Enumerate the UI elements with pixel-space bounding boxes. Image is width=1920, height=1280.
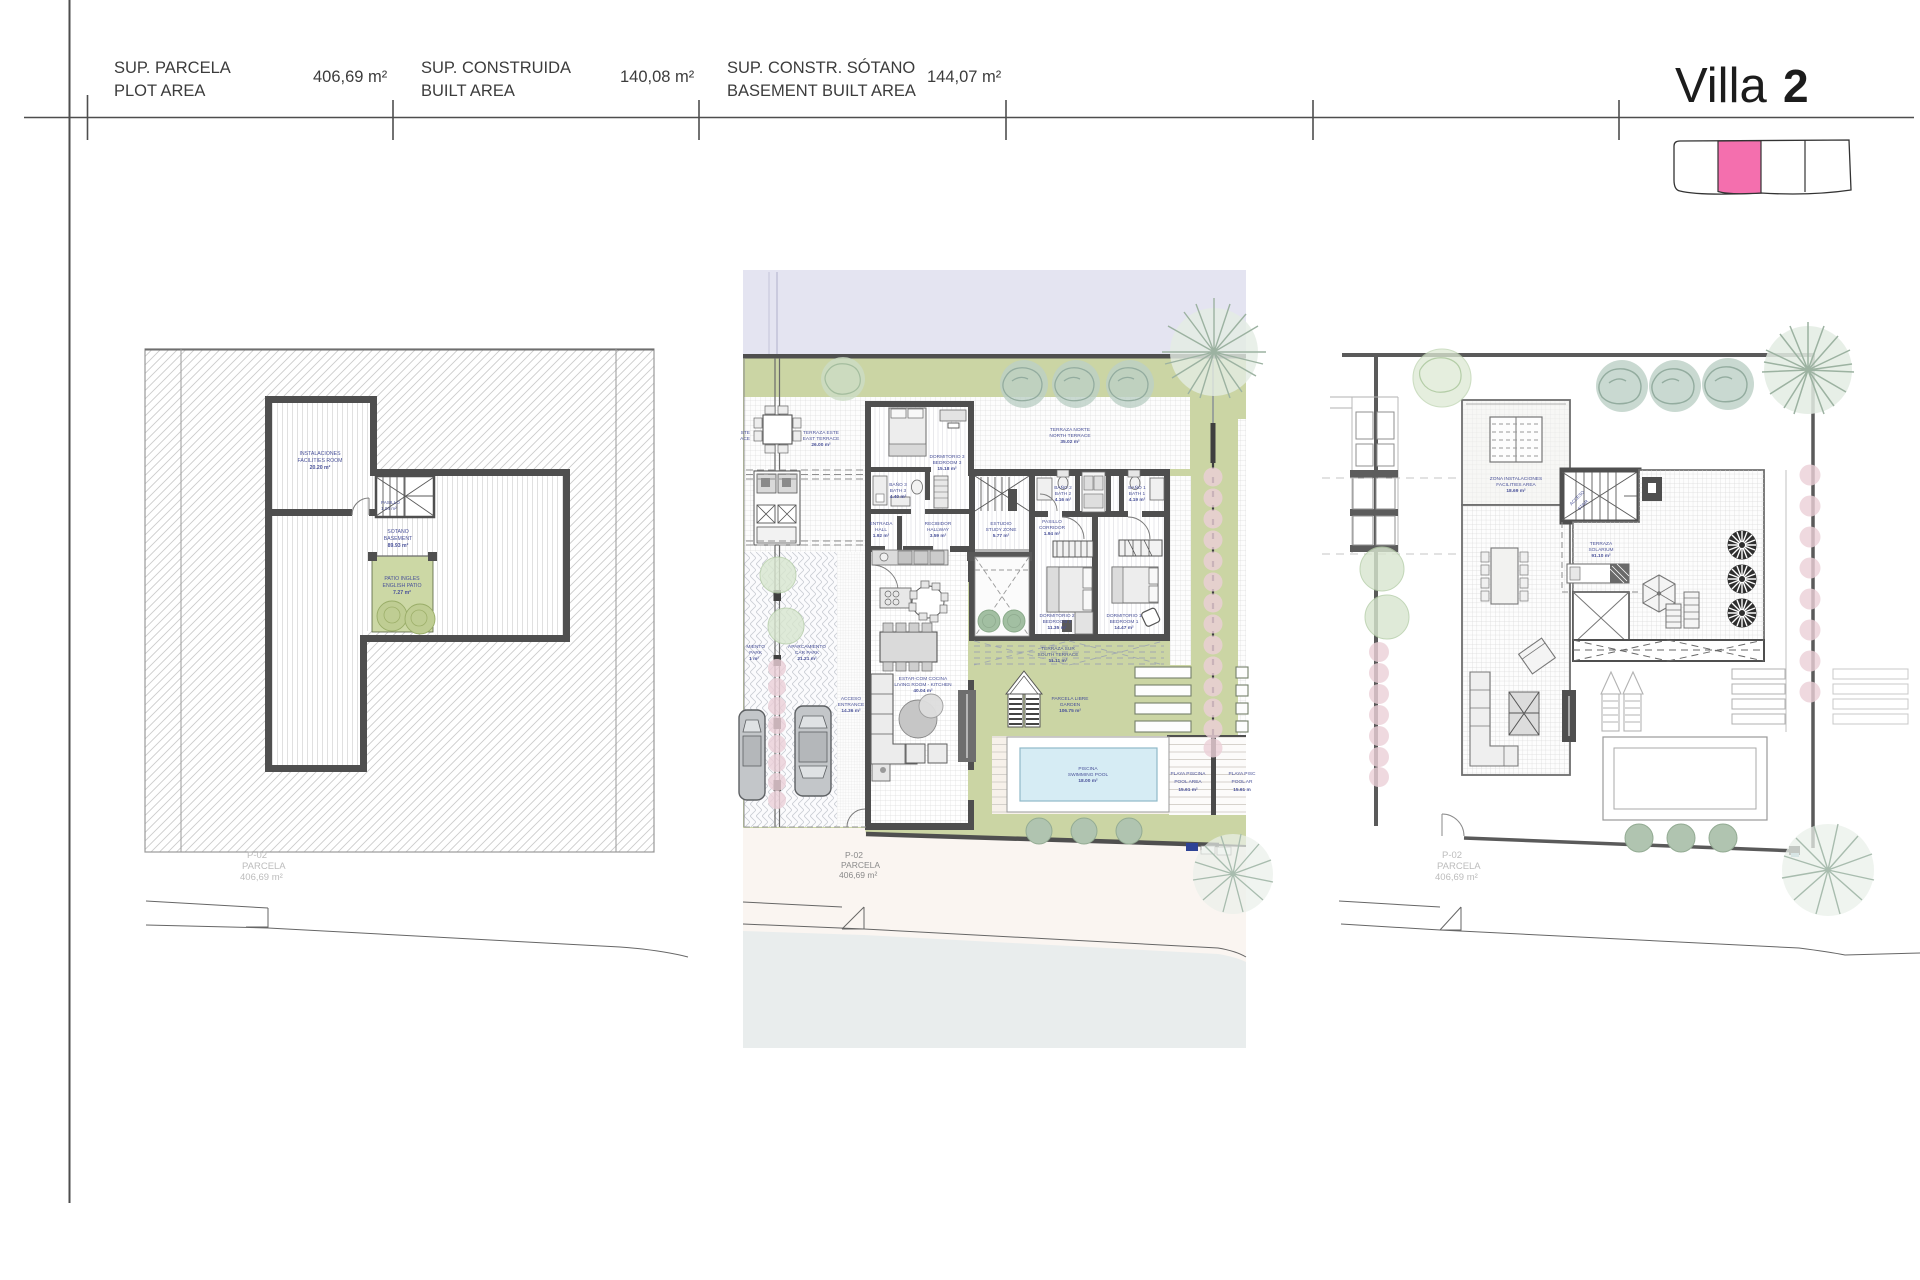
- svg-text:18.69 m²: 18.69 m²: [1506, 488, 1526, 494]
- svg-text:SUP. CONSTR. SÓTANO: SUP. CONSTR. SÓTANO: [727, 58, 915, 77]
- svg-text:SOTANO: SOTANO: [387, 529, 409, 535]
- svg-text:HALLWAY: HALLWAY: [927, 527, 950, 533]
- svg-text:406,69 m²: 406,69 m²: [313, 68, 388, 86]
- svg-text:POOL AR: POOL AR: [1232, 779, 1253, 785]
- svg-text:140,08 m²: 140,08 m²: [620, 68, 695, 86]
- svg-text:ENGLISH PATIO: ENGLISH PATIO: [382, 583, 421, 589]
- svg-text:MIENTO: MIENTO: [746, 644, 765, 650]
- svg-text:BAÑO 3: BAÑO 3: [889, 481, 907, 488]
- svg-text:BATH 2: BATH 2: [1055, 491, 1072, 497]
- svg-text:91.10 m²: 91.10 m²: [1591, 553, 1611, 559]
- svg-text:4.40 m²: 4.40 m²: [890, 494, 907, 500]
- svg-text:BUILT AREA: BUILT AREA: [421, 82, 515, 100]
- svg-text:PARCELA: PARCELA: [841, 860, 880, 870]
- svg-text:BAÑO 1: BAÑO 1: [1128, 484, 1146, 491]
- svg-text:15.61 m: 15.61 m: [1233, 787, 1251, 793]
- svg-text:INSTALACIONES: INSTALACIONES: [299, 451, 341, 457]
- svg-text:GARDEN: GARDEN: [1060, 702, 1081, 708]
- svg-text:BEDROOM 1: BEDROOM 1: [1110, 619, 1139, 625]
- svg-text:144,07 m²: 144,07 m²: [927, 68, 1002, 86]
- svg-text:406,69 m²: 406,69 m²: [839, 870, 877, 880]
- svg-text:LIVING ROOM - KITCHEN: LIVING ROOM - KITCHEN: [894, 682, 952, 688]
- svg-text:TERRAZA: TERRAZA: [1590, 541, 1613, 547]
- svg-text:14.47 m²: 14.47 m²: [1114, 625, 1134, 631]
- svg-text:SWIMMING POOL: SWIMMING POOL: [1068, 772, 1109, 778]
- svg-text:P-02: P-02: [1442, 850, 1462, 861]
- svg-text:TERRAZA SUR: TERRAZA SUR: [1041, 646, 1075, 652]
- svg-text:ACCESO: ACCESO: [841, 696, 862, 702]
- svg-text:1 m²: 1 m²: [749, 656, 759, 662]
- svg-text:ENTRANCE: ENTRANCE: [838, 702, 864, 708]
- svg-text:15.18 m²: 15.18 m²: [937, 466, 957, 472]
- svg-text:PLAYA PISC: PLAYA PISC: [1228, 771, 1256, 777]
- svg-text:PLOT AREA: PLOT AREA: [114, 82, 205, 100]
- svg-text:BASEMENT BUILT AREA: BASEMENT BUILT AREA: [727, 82, 916, 100]
- svg-text:NORTH TERRACE: NORTH TERRACE: [1049, 433, 1090, 439]
- svg-text:P-02: P-02: [247, 850, 267, 861]
- svg-text:RECIBIDOR: RECIBIDOR: [925, 521, 952, 527]
- svg-text:7.27 m²: 7.27 m²: [393, 590, 411, 596]
- svg-text:STUDY ZONE: STUDY ZONE: [986, 527, 1017, 533]
- svg-text:ACE: ACE: [740, 436, 750, 442]
- svg-text:PARCELA: PARCELA: [1437, 861, 1481, 872]
- svg-text:POOL AREA: POOL AREA: [1174, 779, 1202, 785]
- svg-text:2: 2: [1783, 60, 1809, 112]
- svg-text:CORRIDOR: CORRIDOR: [1039, 525, 1066, 531]
- svg-text:PASILLO: PASILLO: [381, 500, 400, 505]
- svg-text:BATH 3: BATH 3: [890, 488, 907, 494]
- svg-text:PISCINA: PISCINA: [1078, 766, 1098, 772]
- svg-text:40.04 m²: 40.04 m²: [913, 688, 933, 694]
- svg-text:EAST TERRACE: EAST TERRACE: [803, 436, 840, 442]
- svg-text:P-02: P-02: [845, 850, 863, 860]
- svg-text:BASEMENT: BASEMENT: [384, 536, 413, 542]
- svg-text:TERRAZA ESTE: TERRAZA ESTE: [803, 430, 839, 436]
- svg-text:ZONA INSTALACIONES: ZONA INSTALACIONES: [1490, 476, 1542, 482]
- svg-text:FACILITIES AREA: FACILITIES AREA: [1496, 482, 1536, 488]
- svg-text:5.77 m²: 5.77 m²: [993, 533, 1010, 539]
- svg-text:Villa: Villa: [1675, 59, 1767, 113]
- svg-text:ENTRADA: ENTRADA: [870, 521, 894, 527]
- svg-text:ESTUDIO: ESTUDIO: [990, 521, 1012, 527]
- svg-text:15.61 m²: 15.61 m²: [1178, 787, 1198, 793]
- svg-text:PLAYA PISCINA: PLAYA PISCINA: [1170, 771, 1206, 777]
- svg-text:TERRAZA NORTE: TERRAZA NORTE: [1050, 427, 1090, 433]
- svg-text:21.21 m²: 21.21 m²: [797, 656, 817, 662]
- svg-text:DORMITORIO 2: DORMITORIO 2: [1039, 613, 1074, 619]
- svg-text:APARCAMIENTO: APARCAMIENTO: [788, 644, 826, 650]
- svg-text:BEDROOM 3: BEDROOM 3: [933, 460, 962, 466]
- svg-text:1.94 m²: 1.94 m²: [1044, 531, 1061, 537]
- svg-text:BAÑO 2: BAÑO 2: [1054, 484, 1072, 491]
- svg-text:14.36 m²: 14.36 m²: [841, 708, 861, 714]
- svg-text:FACILITIES ROOM: FACILITIES ROOM: [298, 458, 343, 464]
- svg-text:PARCELA: PARCELA: [242, 861, 286, 872]
- svg-text:SOLARIUM: SOLARIUM: [1588, 547, 1613, 553]
- svg-text:18.00 m²: 18.00 m²: [1078, 778, 1098, 784]
- svg-text:4.19 m²: 4.19 m²: [1129, 497, 1146, 503]
- svg-text:SOUTH TERRACE: SOUTH TERRACE: [1038, 652, 1079, 658]
- svg-text:11.11 m²: 11.11 m²: [1049, 658, 1068, 664]
- svg-text:PATIO INGLES: PATIO INGLES: [384, 576, 420, 582]
- svg-text:406,69 m²: 406,69 m²: [240, 872, 283, 883]
- svg-text:11.35 m²: 11.35 m²: [1048, 625, 1067, 631]
- svg-text:PASILLO: PASILLO: [1042, 519, 1062, 525]
- svg-text:1.04 m²: 1.04 m²: [381, 506, 397, 511]
- svg-text:3.59 m²: 3.59 m²: [930, 533, 947, 539]
- svg-text:35.02 m²: 35.02 m²: [1060, 439, 1080, 445]
- svg-text:SUP. CONSTRUIDA: SUP. CONSTRUIDA: [421, 59, 571, 77]
- svg-text:STE: STE: [741, 430, 750, 436]
- svg-text:SUP. PARCELA: SUP. PARCELA: [114, 59, 231, 77]
- svg-text:20.20 m²: 20.20 m²: [310, 465, 331, 471]
- svg-text:PARK: PARK: [749, 650, 763, 656]
- svg-text:1.92 m²: 1.92 m²: [873, 533, 890, 539]
- svg-text:106.75 m²: 106.75 m²: [1059, 708, 1081, 714]
- svg-text:DORMITORIO 1: DORMITORIO 1: [1106, 613, 1141, 619]
- svg-text:4.16 m²: 4.16 m²: [1055, 497, 1072, 503]
- svg-text:26.00 m²: 26.00 m²: [811, 442, 831, 448]
- svg-text:406,69 m²: 406,69 m²: [1435, 872, 1478, 883]
- svg-text:89.93 m²: 89.93 m²: [388, 543, 409, 549]
- svg-text:CAR PARK: CAR PARK: [795, 650, 820, 656]
- svg-text:BEDROOM 2: BEDROOM 2: [1043, 619, 1072, 625]
- svg-text:ESTAR-COM COCINA: ESTAR-COM COCINA: [899, 676, 948, 682]
- svg-text:PARCELA LIBRE: PARCELA LIBRE: [1052, 696, 1089, 702]
- svg-text:DORMITORIO 3: DORMITORIO 3: [929, 454, 964, 460]
- svg-text:BATH 1: BATH 1: [1129, 491, 1146, 497]
- svg-text:HALL: HALL: [875, 527, 887, 533]
